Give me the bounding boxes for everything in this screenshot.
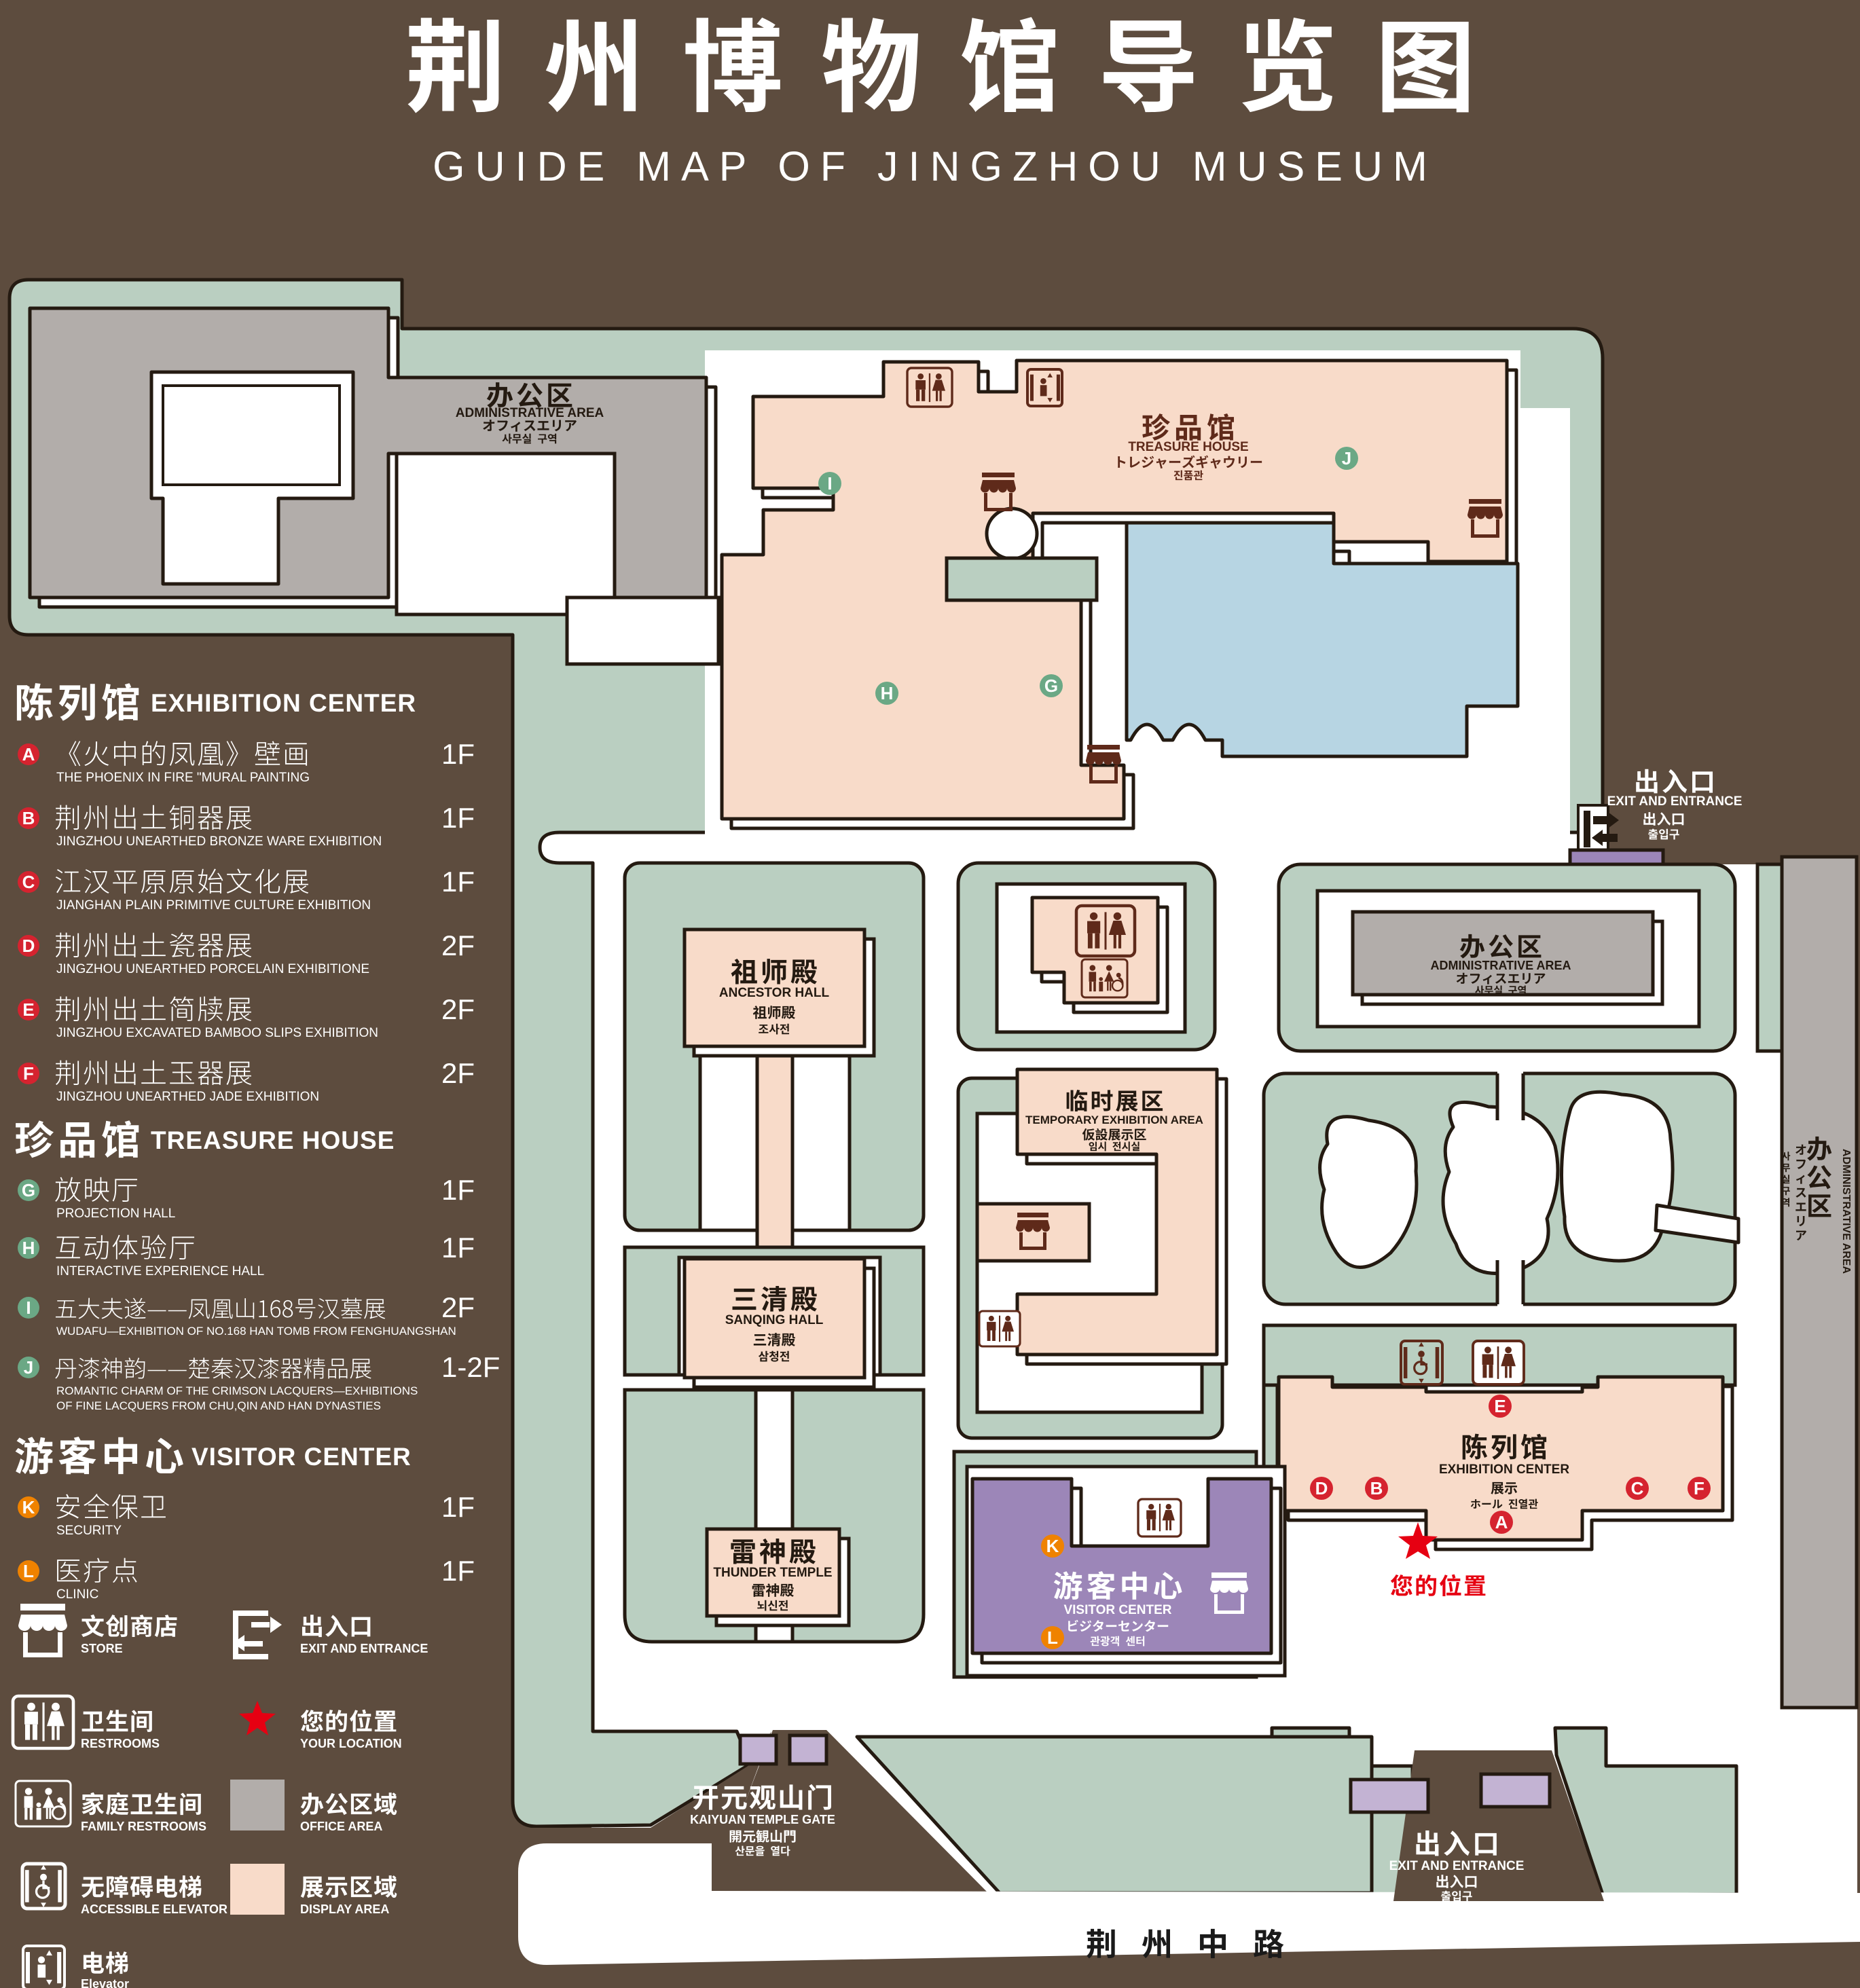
svg-text:JINGZHOU UNEARTHED PORCELAIN E: JINGZHOU UNEARTHED PORCELAIN EXHIBITIONE	[56, 962, 369, 976]
svg-text:SECURITY: SECURITY	[56, 1524, 122, 1538]
svg-text:H: H	[22, 1238, 35, 1258]
svg-text:D: D	[1315, 1478, 1328, 1498]
svg-text:1F: 1F	[441, 1491, 475, 1523]
svg-text:L: L	[1047, 1627, 1058, 1648]
svg-text:ANCESTOR HALL: ANCESTOR HALL	[719, 986, 830, 1000]
svg-text:EXIT AND ENTRANCE: EXIT AND ENTRANCE	[1607, 794, 1743, 809]
svg-text:B: B	[22, 808, 35, 828]
svg-text:RESTROOMS: RESTROOMS	[81, 1737, 160, 1750]
svg-text:THE PHOENIX IN FIRE "MURAL PAI: THE PHOENIX IN FIRE "MURAL PAINTING	[56, 771, 310, 785]
svg-text:STORE: STORE	[81, 1642, 123, 1655]
svg-text:CLINIC: CLINIC	[56, 1587, 98, 1602]
svg-text:2F: 2F	[441, 929, 475, 961]
svg-text:1F: 1F	[441, 802, 475, 834]
svg-text:H: H	[881, 683, 894, 703]
svg-text:I: I	[26, 1297, 31, 1318]
svg-text:ADMINISTRATIVE AREA: ADMINISTRATIVE AREA	[1431, 959, 1571, 972]
svg-text:GUIDE MAP OF JINGZHOU MUSEUM: GUIDE MAP OF JINGZHOU MUSEUM	[433, 143, 1438, 189]
svg-text:A: A	[22, 744, 35, 765]
svg-text:EXHIBITION CENTER: EXHIBITION CENTER	[151, 689, 416, 717]
svg-text:J: J	[24, 1357, 33, 1378]
svg-text:JIANGHAN PLAIN PRIMITIVE CULTU: JIANGHAN PLAIN PRIMITIVE CULTURE EXHIBIT…	[56, 898, 371, 913]
svg-text:G: G	[22, 1180, 35, 1200]
svg-text:EXIT AND ENTRANCE: EXIT AND ENTRANCE	[300, 1642, 428, 1655]
svg-text:E: E	[1494, 1396, 1506, 1416]
svg-text:TEMPORARY EXHIBITION AREA: TEMPORARY EXHIBITION AREA	[1025, 1113, 1203, 1126]
svg-text:SANQING HALL: SANQING HALL	[725, 1313, 824, 1327]
svg-text:G: G	[1044, 676, 1058, 696]
svg-text:WUDAFU—EXHIBITION OF NO.168 HA: WUDAFU—EXHIBITION OF NO.168 HAN TOMB FRO…	[56, 1325, 456, 1338]
svg-text:JINGZHOU UNEARTHED BRONZE WARE: JINGZHOU UNEARTHED BRONZE WARE EXHIBITIO…	[56, 834, 382, 849]
svg-text:C: C	[1631, 1478, 1644, 1498]
svg-text:K: K	[1046, 1536, 1059, 1556]
svg-text:Elevator: Elevator	[81, 1977, 129, 1988]
svg-text:INTERACTIVE EXPERIENCE HALL: INTERACTIVE EXPERIENCE HALL	[56, 1264, 264, 1278]
svg-text:FAMILY RESTROOMS: FAMILY RESTROOMS	[81, 1820, 206, 1833]
svg-text:ADMINISTRATIVE AREA: ADMINISTRATIVE AREA	[456, 406, 604, 420]
svg-text:1F: 1F	[441, 866, 475, 898]
svg-text:EXHIBITION CENTER: EXHIBITION CENTER	[1439, 1462, 1569, 1477]
svg-text:J: J	[1342, 448, 1351, 468]
svg-text:OF FINE LACQUERS FROM CHU,QIN: OF FINE LACQUERS FROM CHU,QIN AND HAN DY…	[56, 1399, 381, 1412]
svg-text:1F: 1F	[441, 1555, 475, 1587]
svg-text:EXIT AND ENTRANCE: EXIT AND ENTRANCE	[1389, 1859, 1525, 1873]
svg-text:ADMINISTRATIVE AREA: ADMINISTRATIVE AREA	[1840, 1149, 1852, 1274]
svg-text:OFFICE AREA: OFFICE AREA	[300, 1820, 382, 1833]
svg-text:1F: 1F	[441, 738, 475, 770]
svg-text:1F: 1F	[441, 1232, 475, 1264]
svg-text:THUNDER TEMPLE: THUNDER TEMPLE	[713, 1566, 832, 1580]
svg-text:JINGZHOU EXCAVATED BAMBOO SLIP: JINGZHOU EXCAVATED BAMBOO SLIPS EXHIBITI…	[56, 1026, 378, 1040]
svg-text:PROJECTION HALL: PROJECTION HALL	[56, 1207, 175, 1221]
svg-text:F: F	[1694, 1478, 1704, 1498]
svg-text:VISITOR CENTER: VISITOR CENTER	[1063, 1603, 1171, 1617]
svg-text:ACCESSIBLE ELEVATOR: ACCESSIBLE ELEVATOR	[81, 1902, 227, 1916]
svg-text:F: F	[23, 1063, 34, 1084]
svg-text:TREASURE HOUSE: TREASURE HOUSE	[1128, 440, 1248, 454]
svg-text:K: K	[22, 1497, 35, 1517]
svg-text:D: D	[22, 936, 35, 956]
svg-text:1F: 1F	[441, 1174, 475, 1206]
svg-text:2F: 2F	[441, 1057, 475, 1089]
svg-text:1-2F: 1-2F	[441, 1351, 500, 1383]
svg-text:KAIYUAN TEMPLE GATE: KAIYUAN TEMPLE GATE	[690, 1813, 835, 1826]
svg-text:DISPLAY AREA: DISPLAY AREA	[300, 1902, 389, 1916]
svg-text:ROMANTIC CHARM OF THE CRIMSON: ROMANTIC CHARM OF THE CRIMSON LACQUERS—E…	[56, 1384, 418, 1397]
svg-text:B: B	[1370, 1478, 1383, 1498]
svg-text:TREASURE HOUSE: TREASURE HOUSE	[151, 1126, 395, 1154]
svg-text:VISITOR CENTER: VISITOR CENTER	[192, 1443, 412, 1471]
svg-text:A: A	[1495, 1512, 1508, 1532]
svg-text:I: I	[827, 473, 832, 494]
svg-text:C: C	[22, 872, 35, 892]
svg-text:E: E	[22, 999, 34, 1020]
svg-text:JINGZHOU UNEARTHED JADE EXHIBI: JINGZHOU UNEARTHED JADE EXHIBITION	[56, 1090, 319, 1104]
svg-text:2F: 2F	[441, 993, 475, 1025]
svg-text:2F: 2F	[441, 1291, 475, 1323]
svg-text:L: L	[23, 1561, 34, 1581]
svg-text:YOUR LOCATION: YOUR LOCATION	[300, 1737, 402, 1750]
